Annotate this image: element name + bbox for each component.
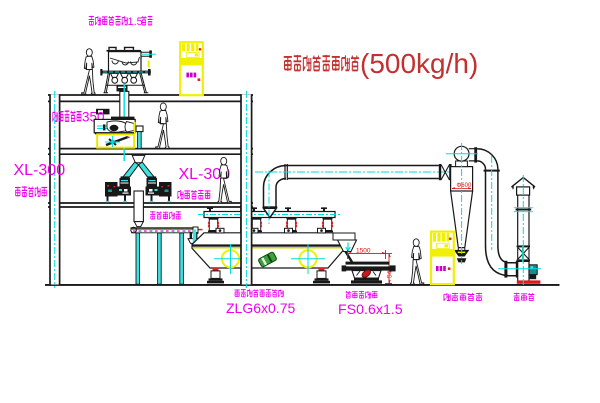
- svg-text:ZLG6x0.75: ZLG6x0.75: [226, 300, 295, 316]
- svg-text:(500kg/h): (500kg/h): [360, 48, 478, 79]
- svg-text:FS0.6x1.5: FS0.6x1.5: [338, 302, 403, 318]
- svg-text:1500: 1500: [356, 248, 371, 255]
- svg-text:1.5: 1.5: [128, 16, 143, 28]
- svg-text:XL-300: XL-300: [14, 162, 66, 179]
